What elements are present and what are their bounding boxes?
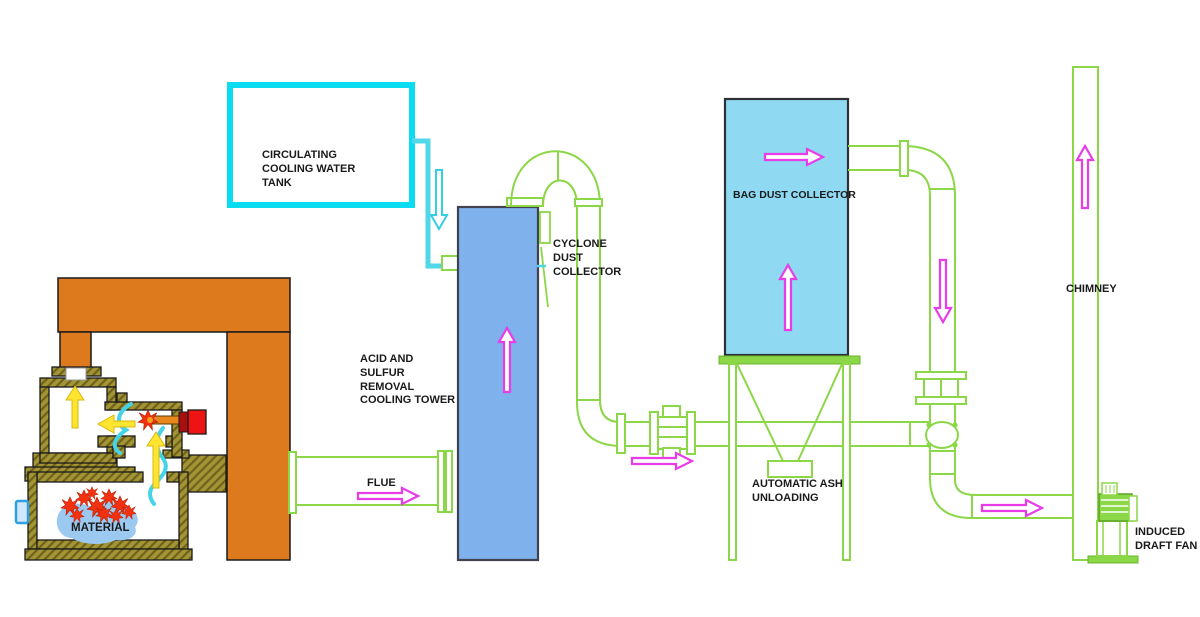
arrow-down-downpipe bbox=[935, 260, 951, 322]
furnace-door-handle bbox=[16, 501, 28, 523]
ash-discharge-box bbox=[768, 461, 812, 477]
ash-unloading-label: AUTOMATIC ASH UNLOADING bbox=[752, 478, 846, 506]
fan-stand bbox=[1097, 521, 1127, 556]
burner-flame bbox=[138, 410, 158, 430]
outlet-flange bbox=[900, 141, 908, 176]
cyclone-ductwork bbox=[511, 151, 930, 459]
induced-draft-fan bbox=[1097, 483, 1137, 556]
arrow-right-fan-duct bbox=[982, 500, 1042, 516]
tower-top-flange bbox=[507, 198, 543, 206]
process-diagram: CIRCULATING COOLING WATER TANK ACID AND … bbox=[0, 0, 1200, 617]
arrow-down-water bbox=[431, 170, 447, 229]
arrow-left-duct bbox=[98, 415, 135, 433]
frame-left-column bbox=[60, 332, 91, 371]
chimney-base bbox=[1088, 556, 1138, 563]
collector-left-leg bbox=[729, 364, 736, 560]
flue-label: FLUE bbox=[367, 477, 396, 491]
collector-right-leg bbox=[843, 364, 850, 560]
frame-right-column bbox=[227, 332, 290, 560]
bypass-damper bbox=[926, 422, 958, 448]
chimney-label: CHIMNEY bbox=[1066, 283, 1117, 297]
tank-label: CIRCULATING COOLING WATER TANK bbox=[262, 149, 380, 190]
material-label: MATERIAL bbox=[71, 521, 130, 535]
frame-beam bbox=[58, 278, 290, 332]
fan-label: INDUCED DRAFT FAN bbox=[1135, 526, 1200, 554]
tower-label: ACID AND SULFUR REMOVAL COOLING TOWER bbox=[360, 353, 458, 408]
duct-flange bbox=[617, 414, 625, 453]
outlet-pipework bbox=[848, 141, 1073, 518]
bag-collector-label: BAG DUST COLLECTOR bbox=[733, 189, 856, 202]
fan-motor bbox=[1099, 494, 1132, 521]
cyclone-label: CYCLONE DUST COLLECTOR bbox=[553, 238, 639, 279]
cyclone-body-edge bbox=[540, 212, 550, 243]
collector-support-beam bbox=[719, 356, 860, 364]
downpipe-coupling bbox=[916, 372, 966, 404]
fan-shaft-cap bbox=[1129, 496, 1137, 521]
cyclone-cone-edge bbox=[541, 247, 548, 307]
duct-valve bbox=[650, 406, 695, 459]
furnace-upper-chamber bbox=[40, 367, 182, 463]
diagram-canvas bbox=[0, 0, 1200, 617]
furnace-top-port bbox=[66, 368, 86, 380]
arrow-up-upper-chamber bbox=[66, 386, 84, 428]
